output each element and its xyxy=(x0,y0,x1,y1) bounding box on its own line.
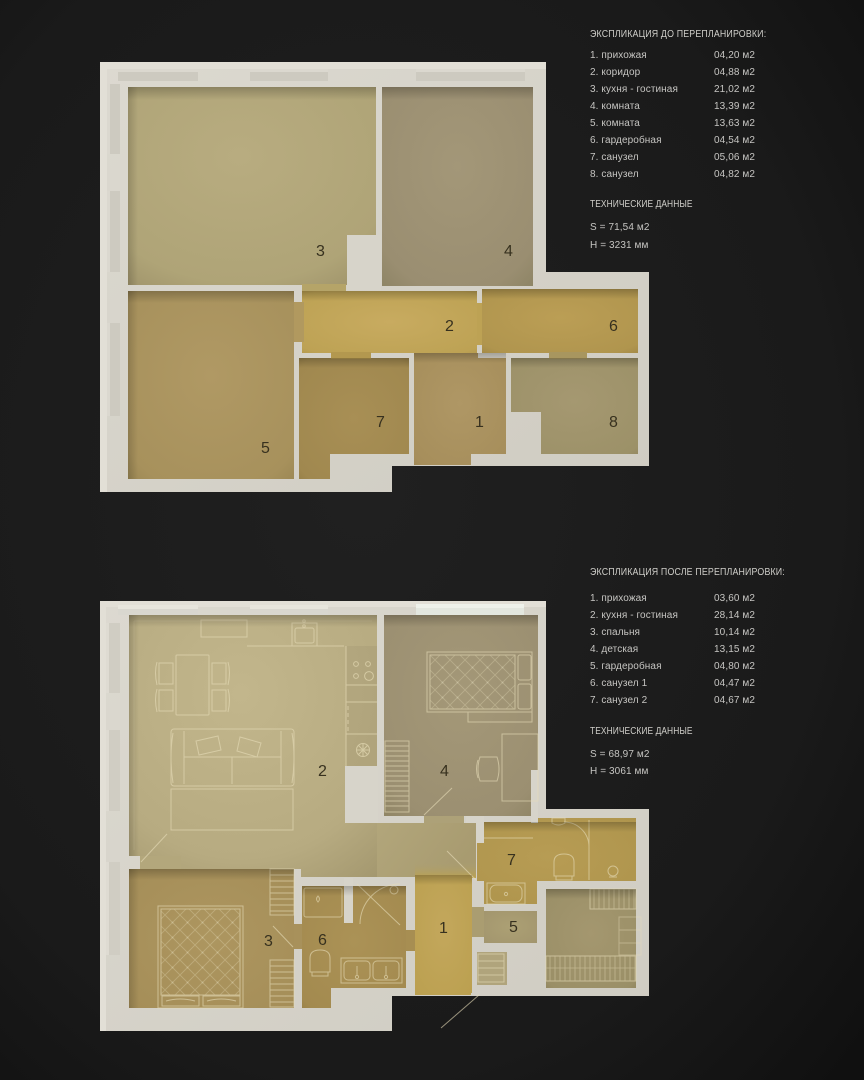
svg-text:5: 5 xyxy=(509,919,518,936)
svg-text:8: 8 xyxy=(609,414,618,431)
svg-text:6: 6 xyxy=(609,318,618,335)
svg-text:6: 6 xyxy=(318,932,327,949)
svg-text:2: 2 xyxy=(445,318,454,335)
svg-text:1: 1 xyxy=(439,920,448,937)
svg-text:1: 1 xyxy=(475,414,484,431)
svg-text:5: 5 xyxy=(261,440,270,457)
svg-text:3: 3 xyxy=(264,933,273,950)
svg-text:7: 7 xyxy=(507,852,516,869)
svg-text:4: 4 xyxy=(504,243,513,260)
svg-text:4: 4 xyxy=(440,763,449,780)
svg-text:7: 7 xyxy=(376,414,385,431)
svg-text:2: 2 xyxy=(318,763,327,780)
svg-text:3: 3 xyxy=(316,243,325,260)
